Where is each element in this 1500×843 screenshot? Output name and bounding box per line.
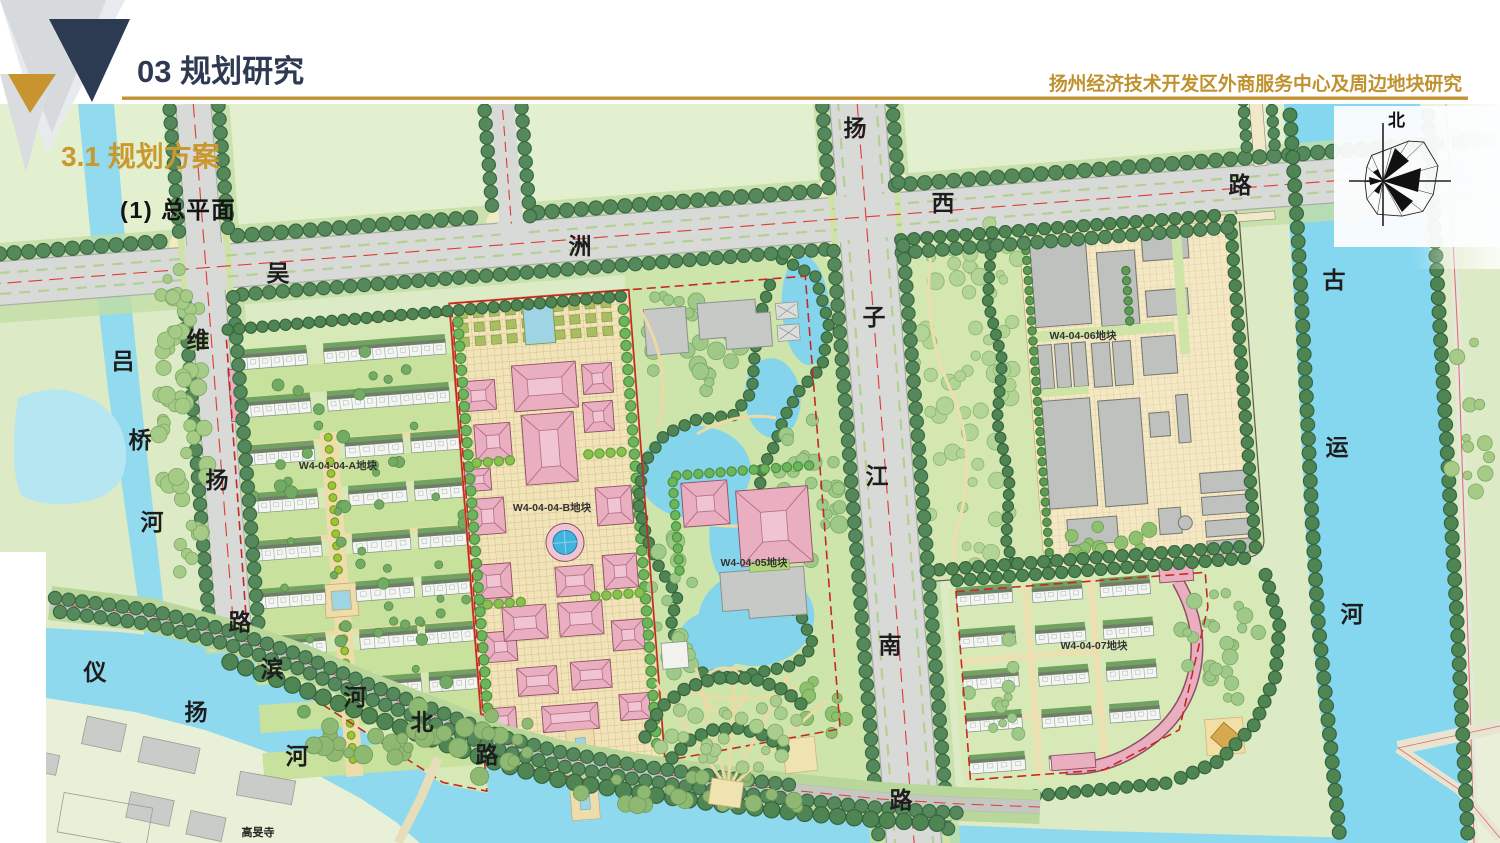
svg-text:滨: 滨 bbox=[261, 656, 284, 682]
svg-text:路: 路 bbox=[229, 609, 253, 635]
svg-text:洲: 洲 bbox=[569, 233, 592, 259]
svg-text:古: 古 bbox=[1323, 267, 1346, 293]
svg-text:03 规划研究: 03 规划研究 bbox=[137, 54, 304, 89]
svg-text:W4-04-05地块: W4-04-05地块 bbox=[720, 556, 788, 569]
svg-text:河: 河 bbox=[141, 509, 164, 535]
svg-text:北: 北 bbox=[411, 709, 434, 735]
svg-text:北: 北 bbox=[1388, 111, 1405, 130]
svg-text:W4-04-07地块: W4-04-07地块 bbox=[1060, 639, 1128, 652]
svg-text:扬: 扬 bbox=[206, 467, 229, 493]
svg-text:W4-04-04-A地块: W4-04-04-A地块 bbox=[299, 459, 378, 472]
svg-text:扬: 扬 bbox=[185, 699, 208, 725]
svg-text:高旻寺: 高旻寺 bbox=[242, 825, 275, 839]
svg-text:吕: 吕 bbox=[112, 348, 135, 374]
svg-text:维: 维 bbox=[187, 327, 210, 353]
svg-text:南: 南 bbox=[879, 632, 902, 658]
svg-text:3.1 规划方案: 3.1 规划方案 bbox=[61, 140, 221, 172]
svg-text:河: 河 bbox=[344, 684, 367, 710]
svg-text:子: 子 bbox=[863, 304, 886, 330]
svg-text:桥: 桥 bbox=[129, 427, 153, 453]
svg-text:西: 西 bbox=[932, 190, 955, 216]
svg-text:仪: 仪 bbox=[83, 659, 108, 685]
svg-text:路: 路 bbox=[476, 742, 500, 768]
svg-text:扬: 扬 bbox=[844, 115, 867, 141]
svg-text:W4-04-06地块: W4-04-06地块 bbox=[1049, 329, 1117, 342]
svg-text:路: 路 bbox=[890, 787, 914, 813]
svg-text:江: 江 bbox=[866, 463, 889, 489]
svg-text:河: 河 bbox=[286, 743, 309, 769]
svg-text:吴: 吴 bbox=[267, 260, 290, 286]
svg-text:运: 运 bbox=[1326, 434, 1349, 460]
svg-text:河: 河 bbox=[1341, 601, 1364, 627]
svg-text:路: 路 bbox=[1229, 172, 1253, 198]
svg-text:扬州经济技术开发区外商服务中心及周边地块研究: 扬州经济技术开发区外商服务中心及周边地块研究 bbox=[1049, 72, 1462, 94]
svg-text:(1) 总平面: (1) 总平面 bbox=[120, 196, 236, 223]
svg-text:W4-04-04-B地块: W4-04-04-B地块 bbox=[513, 501, 592, 514]
